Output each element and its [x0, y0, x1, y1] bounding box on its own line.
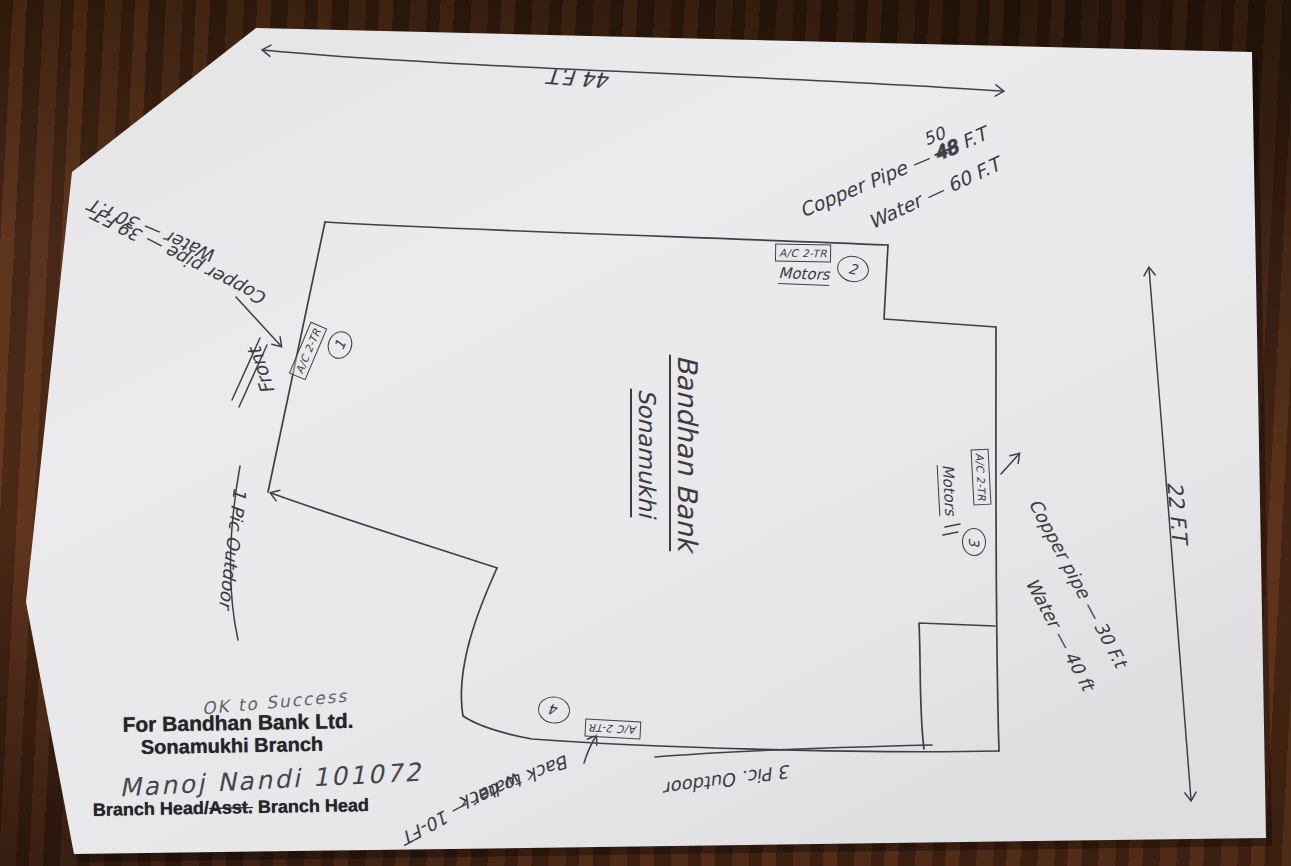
dimension-label-top: 44 F.T [548, 64, 611, 92]
ac-unit-2-box: A/C 2-TR [775, 244, 831, 263]
unit-number-2: 2 [847, 260, 859, 278]
unit-number-3: 3 [966, 537, 982, 547]
ac-unit-3-box: A/C 2-TR [971, 449, 992, 506]
stamp-branch: Sonamukhi Branch [141, 733, 324, 759]
ac-unit-4-box: A/C 2-TR [585, 719, 642, 740]
photo-of-floor-plan-sketch: 44 F.T 22 F.T Copper Pipe — 50 48 F.T Wa… [0, 0, 1291, 866]
bank-name-line2: Sonamukhi [627, 355, 667, 552]
stamp-title-struck: Asst. [209, 797, 253, 818]
ac-unit-2-motors-label: Motors [778, 264, 830, 284]
stamp-title-prefix: Branch Head/ [93, 798, 209, 820]
bank-name-line1: Bandhan Bank [667, 355, 707, 552]
ac-unit-3-motors-label: Motors [939, 464, 960, 516]
bank-name: Bandhan Bank Sonamukhi [627, 355, 707, 552]
unit-number-1: 1 [331, 338, 349, 352]
stamp-title-suffix: Branch Head [253, 795, 369, 817]
unit-number-4: 4 [548, 701, 559, 718]
